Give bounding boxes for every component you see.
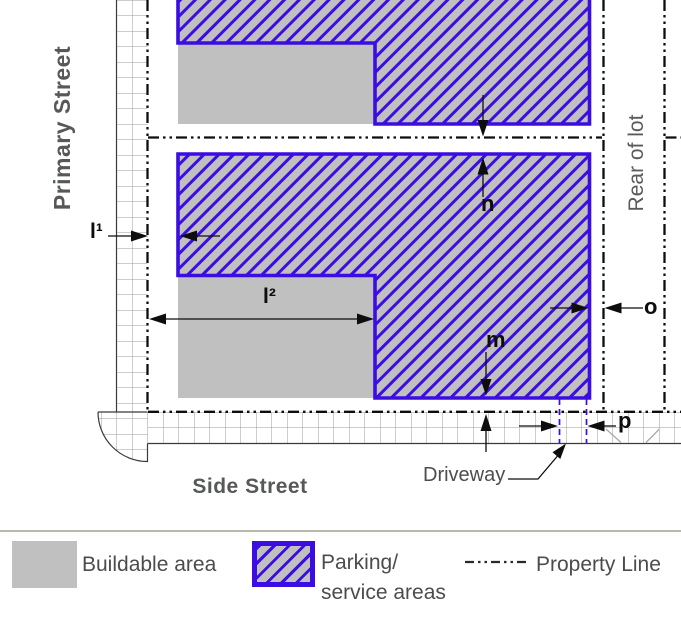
primary-street-label: Primary Street: [49, 43, 75, 213]
side-street-label: Side Street: [183, 475, 317, 499]
buildable-area-upper: [178, 43, 375, 124]
upper-lot: [178, 0, 590, 124]
legend-property-line-label: Property Line: [536, 552, 661, 578]
setback-diagram: Primary Street Rear of lot Side Street D…: [0, 0, 681, 617]
legend-parking-label-line1: Parking/: [321, 548, 446, 578]
rear-of-lot-label: Rear of lot: [625, 103, 649, 223]
legend-parking-label-line2: service areas: [321, 578, 446, 608]
dim-n-label: n: [481, 193, 494, 215]
legend-property-line-sample: [464, 558, 530, 566]
legend-buildable-label: Buildable area: [82, 552, 216, 578]
driveway-label: Driveway: [423, 464, 505, 487]
primary-street-roadway: [98, 0, 148, 462]
dim-m-label: m: [486, 329, 506, 351]
buildable-area-lower: [178, 276, 375, 399]
dim-p-label: p: [618, 410, 631, 432]
lower-lot: [178, 154, 590, 398]
legend-separator: [0, 530, 681, 532]
diagram-canvas: [0, 0, 681, 531]
legend-parking-swatch: [252, 541, 315, 587]
dim-o-label: o: [644, 296, 657, 318]
legend-buildable-swatch: [12, 541, 77, 588]
dim-l1-label: l¹: [90, 221, 103, 243]
legend-parking-label: Parking/ service areas: [321, 548, 446, 608]
driveway-leader-arrow: [508, 444, 566, 480]
dim-l2-label: l²: [263, 286, 276, 308]
